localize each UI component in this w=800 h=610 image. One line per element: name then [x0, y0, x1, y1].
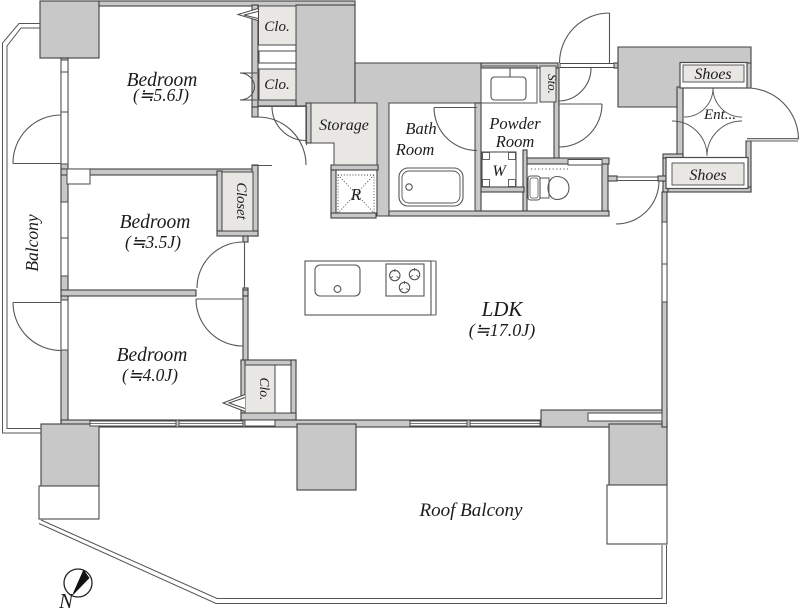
svg-text:N: N [58, 589, 74, 610]
svg-text:Room: Room [495, 132, 535, 151]
svg-text:Bedroom: Bedroom [117, 345, 188, 366]
svg-text:Balcony: Balcony [22, 214, 42, 272]
svg-text:Clo.: Clo. [264, 77, 289, 93]
svg-text:Bedroom: Bedroom [120, 212, 191, 233]
svg-text:Room: Room [395, 140, 435, 159]
svg-text:LDK: LDK [481, 297, 524, 321]
svg-text:W: W [492, 163, 507, 180]
svg-text:Clo.: Clo. [257, 378, 272, 401]
svg-text:Bath: Bath [405, 119, 436, 138]
svg-text:(≒5.6J): (≒5.6J) [133, 85, 189, 105]
svg-text:R: R [350, 185, 362, 204]
svg-text:(≒3.5J): (≒3.5J) [125, 232, 181, 252]
svg-text:Shoes: Shoes [689, 167, 726, 184]
svg-text:Shoes: Shoes [694, 66, 731, 83]
svg-text:Storage: Storage [319, 117, 369, 134]
svg-text:(≒4.0J): (≒4.0J) [122, 365, 178, 385]
svg-text:Clo.: Clo. [264, 19, 289, 35]
svg-text:Closet: Closet [233, 182, 249, 220]
svg-text:(≒17.0J): (≒17.0J) [469, 320, 536, 341]
svg-text:Ent...: Ent... [703, 107, 736, 123]
svg-text:Roof Balcony: Roof Balcony [419, 500, 523, 521]
svg-text:Sto.: Sto. [545, 74, 560, 94]
svg-text:Powder: Powder [488, 114, 541, 133]
